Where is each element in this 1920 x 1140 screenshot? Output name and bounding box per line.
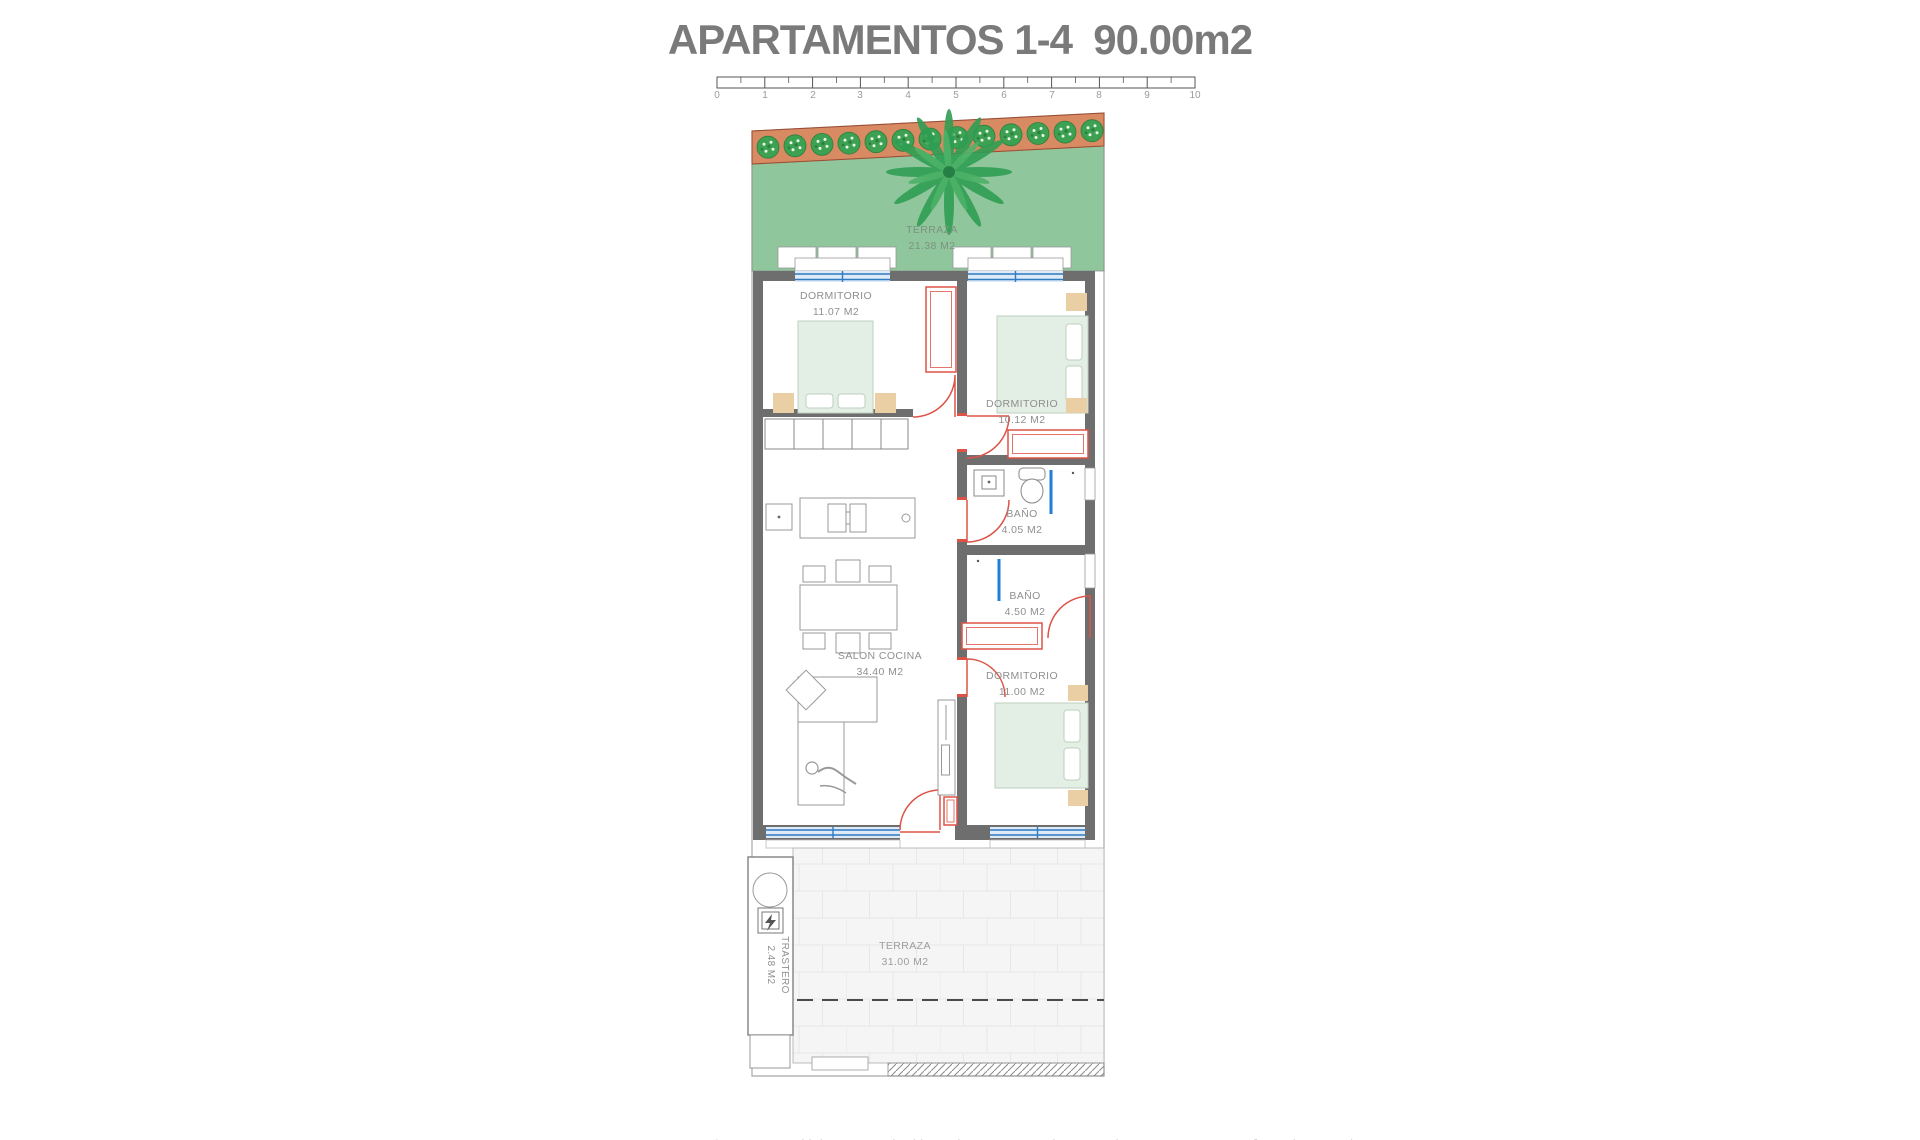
disclaimer-text: *Estas medidas son indicativas y pueden … xyxy=(713,1106,1420,1140)
water-heater-icon xyxy=(753,873,787,907)
scale-number: 5 xyxy=(953,90,959,101)
room-label-terraza-top: TERRAZA21.38 M2 xyxy=(872,222,992,254)
window-top-bedroom2 xyxy=(968,258,1063,282)
window-bottom-bedroom3 xyxy=(990,827,1085,848)
room-label-bano-2: BAÑO4.50 M2 xyxy=(965,588,1085,620)
trastero-step xyxy=(750,1035,790,1068)
hatched-walkway xyxy=(888,1063,1104,1076)
room-label-trastero: TRASTERO2.48 M2 xyxy=(763,919,791,1011)
room-label-bano-1: BAÑO4.05 M2 xyxy=(962,506,1082,538)
scale-number: 8 xyxy=(1096,90,1102,101)
scale-number: 9 xyxy=(1144,90,1150,101)
scale-number: 2 xyxy=(810,90,816,101)
room-label-dormitorio-1: DORMITORIO11.07 M2 xyxy=(776,288,896,320)
scale-number: 1 xyxy=(762,90,768,101)
room-label-salon-cocina: SALON COCINA34.40 M2 xyxy=(820,648,940,680)
bedroom3-furniture xyxy=(995,685,1088,806)
scale-number: 0 xyxy=(714,90,720,101)
room-label-terraza-bottom: TERRAZA31.00 M2 xyxy=(845,938,965,970)
scale-number: 4 xyxy=(905,90,911,101)
room-label-dormitorio-3: DORMITORIO11.00 M2 xyxy=(962,668,1082,700)
window-bottom-living xyxy=(766,827,900,848)
floor-plan-page: APARTAMENTOS 1-4 90.00m2 xyxy=(0,0,1920,1140)
scale-number: 6 xyxy=(1001,90,1007,101)
scale-bar xyxy=(717,77,1195,88)
tv-unit xyxy=(938,700,955,795)
scale-number: 7 xyxy=(1049,90,1055,101)
wardrobe-shelving xyxy=(765,419,908,449)
window-top-bedroom1 xyxy=(795,258,890,282)
room-label-dormitorio-2: DORMITORIO10.12 M2 xyxy=(962,396,1082,428)
scale-number: 3 xyxy=(857,90,863,101)
scale-number: 10 xyxy=(1189,90,1200,101)
terrace-step xyxy=(812,1057,868,1070)
dining-table xyxy=(800,560,897,653)
